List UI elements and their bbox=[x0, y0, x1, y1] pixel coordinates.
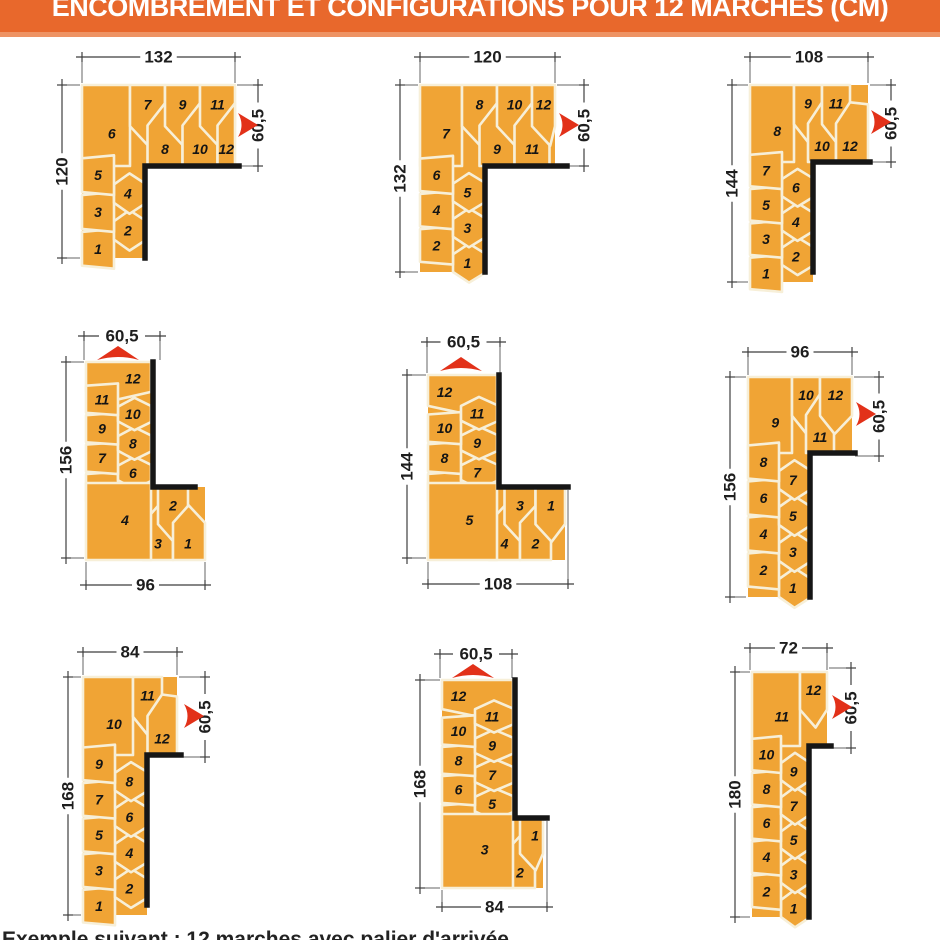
stair-diagrams-canvas: 67891011121234513212060,5789101112123456… bbox=[0, 0, 940, 940]
step-number-12: 12 bbox=[842, 138, 858, 154]
step-number-9: 9 bbox=[179, 96, 187, 112]
page-title: ENCOMBREMENT ET CONFIGURATIONS POUR 12 M… bbox=[0, 0, 940, 23]
step-number-7: 7 bbox=[144, 96, 153, 112]
corner-step-cell-8 bbox=[750, 85, 794, 162]
corner-step-cell-9 bbox=[748, 377, 792, 453]
step-number-4: 4 bbox=[762, 849, 771, 865]
step-number-2: 2 bbox=[168, 497, 177, 513]
step-number-5: 5 bbox=[789, 508, 797, 524]
wall-line bbox=[810, 453, 855, 597]
step-number-2: 2 bbox=[791, 248, 800, 264]
step-number-9: 9 bbox=[95, 756, 103, 772]
step-number-8: 8 bbox=[773, 123, 781, 139]
step-number-10: 10 bbox=[106, 716, 122, 732]
step-number-5: 5 bbox=[762, 197, 770, 213]
step-number-7: 7 bbox=[790, 798, 799, 814]
dimension-label: 180 bbox=[726, 780, 745, 808]
step-number-2: 2 bbox=[762, 883, 771, 899]
step-number-6: 6 bbox=[455, 782, 463, 798]
step-number-7: 7 bbox=[442, 126, 451, 142]
step-number-5: 5 bbox=[466, 512, 474, 528]
stair-diagram-config-84x168: 1011121234567898416860,5 bbox=[58, 643, 215, 926]
step-number-8: 8 bbox=[161, 141, 169, 157]
step-number-3: 3 bbox=[790, 866, 798, 882]
step-number-8: 8 bbox=[455, 752, 463, 768]
dimension-label: 84 bbox=[485, 898, 504, 917]
step-number-11: 11 bbox=[95, 391, 110, 407]
step-number-2: 2 bbox=[531, 536, 540, 552]
wall-line bbox=[515, 680, 547, 818]
step-number-10: 10 bbox=[192, 141, 208, 157]
stair-diagram-config-84x168-exit-top: 12456789101121360,516884 bbox=[410, 645, 553, 917]
dimension-label: 168 bbox=[59, 782, 78, 810]
step-number-6: 6 bbox=[129, 465, 137, 481]
wall-line bbox=[485, 166, 567, 272]
step-number-10: 10 bbox=[437, 420, 453, 436]
step-number-10: 10 bbox=[125, 406, 141, 422]
stair-diagram-config-132x120: 67891011121234513212060,5 bbox=[52, 48, 268, 269]
step-number-12: 12 bbox=[218, 141, 234, 157]
step-number-10: 10 bbox=[798, 387, 814, 403]
step-number-2: 2 bbox=[515, 864, 524, 880]
step-number-9: 9 bbox=[790, 764, 798, 780]
step-number-10: 10 bbox=[451, 723, 467, 739]
stair-diagram-config-108x144-exit-top: 12678910114321560,5144108 bbox=[397, 333, 574, 594]
dimension-label: 96 bbox=[791, 343, 810, 362]
title-banner: ENCOMBREMENT ET CONFIGURATIONS POUR 12 M… bbox=[0, 0, 940, 37]
dimension-label: 60,5 bbox=[459, 645, 492, 664]
step-number-7: 7 bbox=[95, 791, 104, 807]
step-number-6: 6 bbox=[760, 490, 768, 506]
corner-step-cell-6 bbox=[82, 85, 130, 166]
step-number-10: 10 bbox=[814, 138, 830, 154]
step-number-11: 11 bbox=[140, 688, 155, 704]
dimension-label: 72 bbox=[779, 639, 798, 658]
step-number-12: 12 bbox=[806, 682, 822, 698]
step-number-7: 7 bbox=[98, 450, 107, 466]
step-number-7: 7 bbox=[488, 767, 497, 783]
step-number-1: 1 bbox=[790, 900, 798, 916]
step-number-5: 5 bbox=[95, 827, 103, 843]
wall-line bbox=[153, 362, 195, 487]
wall-line bbox=[809, 746, 831, 917]
step-number-8: 8 bbox=[126, 774, 134, 790]
dimension-label: 108 bbox=[484, 575, 512, 594]
dimension-label: 132 bbox=[144, 48, 172, 67]
step-number-2: 2 bbox=[123, 222, 132, 238]
step-number-8: 8 bbox=[760, 454, 768, 470]
step-number-11: 11 bbox=[525, 141, 540, 157]
step-number-7: 7 bbox=[789, 472, 798, 488]
dimension-label: 60,5 bbox=[105, 327, 138, 346]
step-number-8: 8 bbox=[441, 450, 449, 466]
step-number-6: 6 bbox=[433, 167, 441, 183]
step-number-10: 10 bbox=[759, 747, 775, 763]
step-number-11: 11 bbox=[813, 429, 828, 445]
dimension-label: 156 bbox=[721, 473, 740, 501]
step-number-4: 4 bbox=[791, 214, 800, 230]
step-number-6: 6 bbox=[126, 809, 134, 825]
step-number-4: 4 bbox=[120, 512, 129, 528]
step-number-4: 4 bbox=[432, 202, 441, 218]
step-number-2: 2 bbox=[125, 880, 134, 896]
dimension-label: 84 bbox=[121, 643, 140, 662]
corner-step-cell-4 bbox=[86, 483, 151, 560]
step-number-1: 1 bbox=[762, 265, 770, 281]
step-number-7: 7 bbox=[473, 465, 482, 481]
stair-diagram-config-120x132: 78910111212345612013260,5 bbox=[390, 48, 594, 283]
stair-diagram-config-96x156-exit-top: 12567891011321460,515696 bbox=[56, 327, 211, 595]
step-number-3: 3 bbox=[516, 497, 524, 513]
step-number-1: 1 bbox=[464, 255, 472, 271]
step-number-9: 9 bbox=[804, 95, 812, 111]
step-number-9: 9 bbox=[98, 421, 106, 437]
dimension-label: 60,5 bbox=[447, 333, 480, 352]
dimension-label: 144 bbox=[398, 452, 417, 481]
direction-arrow-up bbox=[440, 357, 482, 371]
step-number-7: 7 bbox=[762, 163, 771, 179]
dimension-label: 120 bbox=[53, 157, 72, 185]
step-number-9: 9 bbox=[473, 435, 481, 451]
step-number-11: 11 bbox=[470, 405, 485, 421]
step-number-8: 8 bbox=[129, 435, 137, 451]
step-number-5: 5 bbox=[94, 167, 102, 183]
step-number-5: 5 bbox=[790, 832, 798, 848]
step-number-6: 6 bbox=[763, 815, 771, 831]
step-number-1: 1 bbox=[547, 497, 555, 513]
step-number-1: 1 bbox=[95, 898, 103, 914]
step-number-12: 12 bbox=[154, 731, 170, 747]
step-number-11: 11 bbox=[485, 709, 500, 725]
step-number-1: 1 bbox=[94, 241, 102, 257]
step-number-6: 6 bbox=[792, 180, 800, 196]
dimension-label: 132 bbox=[391, 164, 410, 192]
step-number-2: 2 bbox=[432, 238, 441, 254]
step-number-3: 3 bbox=[762, 231, 770, 247]
step-number-3: 3 bbox=[481, 842, 489, 858]
step-number-9: 9 bbox=[493, 141, 501, 157]
step-number-12: 12 bbox=[437, 384, 453, 400]
step-number-9: 9 bbox=[771, 415, 779, 431]
corner-step-cell-3 bbox=[442, 814, 513, 888]
step-number-6: 6 bbox=[108, 126, 116, 142]
step-number-4: 4 bbox=[759, 526, 768, 542]
step-number-12: 12 bbox=[125, 370, 141, 386]
dimension-label: 120 bbox=[473, 48, 501, 67]
stair-diagram-config-72x180: 1112123456789107218060,5 bbox=[725, 639, 861, 928]
dimension-label: 60,5 bbox=[870, 400, 889, 433]
step-number-4: 4 bbox=[125, 845, 134, 861]
direction-arrow-up bbox=[452, 664, 494, 678]
step-number-3: 3 bbox=[95, 863, 103, 879]
step-number-1: 1 bbox=[531, 828, 539, 844]
step-number-4: 4 bbox=[500, 536, 509, 552]
dimension-label: 96 bbox=[136, 576, 155, 595]
dimension-label: 168 bbox=[411, 770, 430, 798]
step-number-3: 3 bbox=[789, 544, 797, 560]
step-number-3: 3 bbox=[154, 536, 162, 552]
stair-diagram-config-108x144: 89101112123456710814460,5 bbox=[722, 48, 901, 292]
step-number-3: 3 bbox=[94, 204, 102, 220]
step-number-2: 2 bbox=[759, 562, 768, 578]
direction-arrow-up bbox=[97, 346, 139, 360]
step-number-11: 11 bbox=[829, 95, 844, 111]
step-number-11: 11 bbox=[210, 96, 225, 112]
step-number-12: 12 bbox=[451, 688, 467, 704]
stair-diagram-config-96x156: 9101112123456789615660,5 bbox=[720, 343, 889, 608]
step-number-12: 12 bbox=[828, 387, 844, 403]
dimension-label: 144 bbox=[723, 169, 742, 198]
wall-line bbox=[145, 166, 239, 258]
step-number-4: 4 bbox=[123, 186, 132, 202]
wall-line bbox=[147, 755, 181, 905]
step-number-3: 3 bbox=[464, 220, 472, 236]
step-number-11: 11 bbox=[774, 708, 789, 724]
corner-step-cell-5 bbox=[428, 483, 497, 560]
step-number-8: 8 bbox=[763, 781, 771, 797]
wall-line bbox=[499, 375, 568, 487]
step-number-5: 5 bbox=[488, 796, 496, 812]
wall-line bbox=[813, 162, 870, 272]
dimension-label: 108 bbox=[795, 48, 823, 67]
corner-step-cell-7 bbox=[420, 85, 462, 166]
step-number-1: 1 bbox=[789, 580, 797, 596]
step-number-12: 12 bbox=[536, 96, 552, 112]
step-number-8: 8 bbox=[476, 96, 484, 112]
step-number-5: 5 bbox=[464, 185, 472, 201]
dimension-label: 156 bbox=[57, 446, 76, 474]
step-number-1: 1 bbox=[184, 536, 192, 552]
bottom-caption-truncated: Exemple suivant : 12 marches avec palier… bbox=[2, 928, 802, 940]
step-number-10: 10 bbox=[507, 96, 523, 112]
step-number-9: 9 bbox=[488, 738, 496, 754]
